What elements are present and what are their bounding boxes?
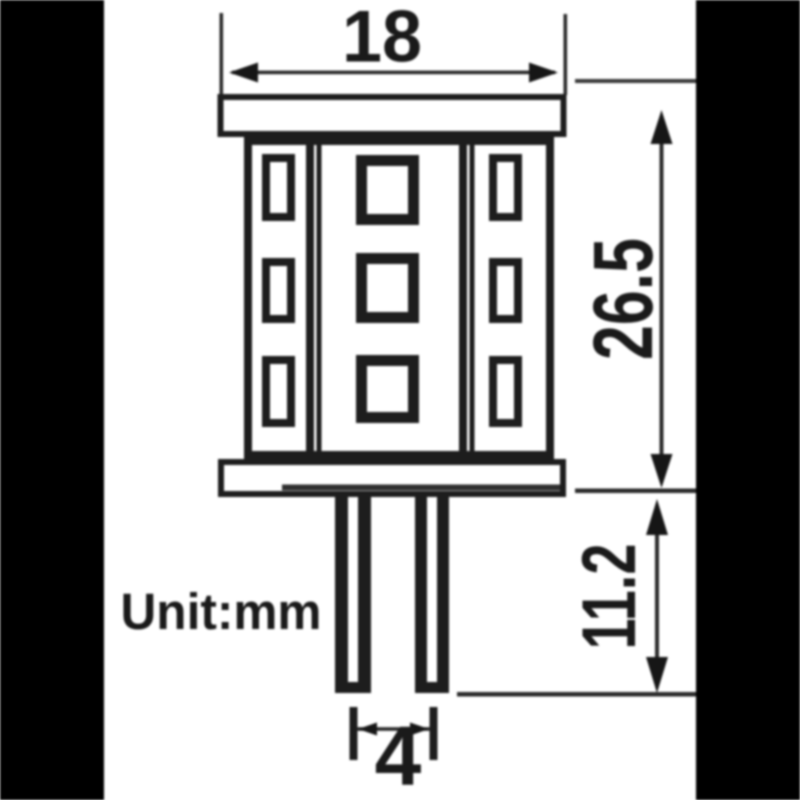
svg-text:18: 18 bbox=[342, 0, 422, 78]
svg-text:4: 4 bbox=[375, 709, 422, 800]
svg-text:Unit:mm: Unit:mm bbox=[121, 583, 322, 640]
svg-text:11.2: 11.2 bbox=[567, 544, 652, 650]
svg-text:26.5: 26.5 bbox=[576, 238, 670, 360]
